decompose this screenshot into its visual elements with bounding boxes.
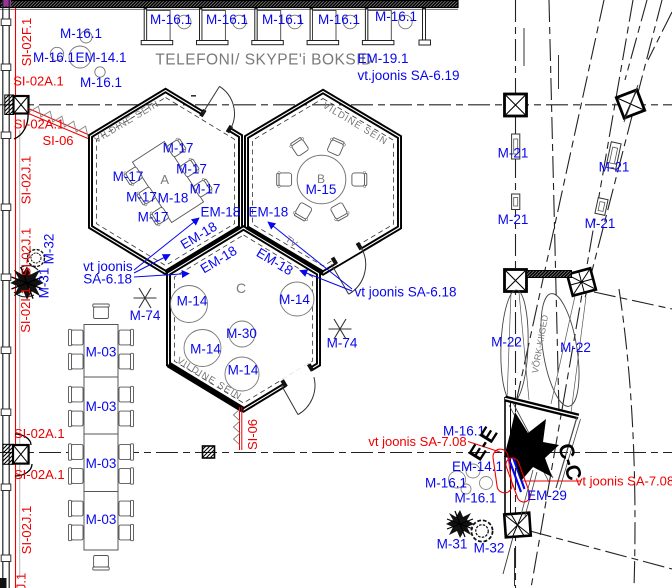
svg-text:M-22: M-22 bbox=[560, 340, 591, 355]
svg-text:M-17: M-17 bbox=[113, 169, 144, 184]
svg-text:M-14: M-14 bbox=[177, 294, 208, 309]
svg-text:M-21: M-21 bbox=[585, 216, 616, 231]
svg-text:M-16.1: M-16.1 bbox=[262, 12, 304, 27]
svg-text:M-17: M-17 bbox=[190, 182, 221, 197]
svg-text:SI-02F.1: SI-02F.1 bbox=[19, 18, 34, 66]
svg-text:M-16.1: M-16.1 bbox=[454, 491, 496, 506]
svg-text:EM-18: EM-18 bbox=[249, 204, 289, 219]
svg-text:C: C bbox=[236, 280, 246, 296]
svg-text:M-21: M-21 bbox=[498, 146, 529, 161]
svg-text:M-32: M-32 bbox=[474, 541, 505, 556]
svg-text:M-15: M-15 bbox=[306, 182, 337, 197]
svg-text:SA-6.18: SA-6.18 bbox=[83, 272, 132, 287]
svg-text:M-03: M-03 bbox=[86, 345, 117, 360]
svg-text:SI-02J.1: SI-02J.1 bbox=[19, 228, 34, 276]
svg-text:EM-29: EM-29 bbox=[527, 488, 567, 503]
svg-text:M-17: M-17 bbox=[138, 210, 169, 225]
svg-text:M-17: M-17 bbox=[163, 141, 194, 156]
svg-text:M-14: M-14 bbox=[190, 342, 221, 357]
svg-text:M-16.1: M-16.1 bbox=[33, 50, 75, 65]
svg-text:SI-02A.1: SI-02A.1 bbox=[14, 426, 65, 441]
svg-text:EM-19.1: EM-19.1 bbox=[357, 51, 408, 66]
svg-text:M-74: M-74 bbox=[130, 308, 161, 323]
svg-text:SI-06: SI-06 bbox=[42, 133, 73, 148]
svg-text:M-14: M-14 bbox=[228, 363, 259, 378]
svg-text:M-21: M-21 bbox=[498, 212, 529, 227]
svg-text:SI-02J.1: SI-02J.1 bbox=[19, 506, 34, 554]
svg-text:M-03: M-03 bbox=[86, 399, 117, 414]
svg-text:vt joonis SA-7.08: vt joonis SA-7.08 bbox=[576, 474, 672, 489]
svg-text:vt.joonis SA-6.19: vt.joonis SA-6.19 bbox=[357, 68, 459, 83]
svg-text:M-30: M-30 bbox=[226, 326, 257, 341]
svg-text:M-16.1: M-16.1 bbox=[80, 75, 122, 90]
svg-text:M-14: M-14 bbox=[279, 292, 310, 307]
svg-text:SI-02A.1: SI-02A.1 bbox=[14, 117, 65, 132]
svg-text:M-21: M-21 bbox=[599, 160, 630, 175]
svg-text:SI-02J.1: SI-02J.1 bbox=[14, 573, 29, 588]
svg-text:EM-14.1: EM-14.1 bbox=[75, 50, 126, 65]
svg-text:M-32: M-32 bbox=[42, 234, 57, 265]
svg-text:EM-18: EM-18 bbox=[201, 204, 241, 219]
svg-text:SI-02I.1: SI-02I.1 bbox=[18, 287, 33, 333]
svg-text:M-03: M-03 bbox=[86, 456, 117, 471]
svg-text:SI-02A.1: SI-02A.1 bbox=[13, 74, 64, 89]
svg-text:SI-02A.1: SI-02A.1 bbox=[14, 467, 65, 482]
svg-text:M-16.1: M-16.1 bbox=[150, 12, 192, 27]
svg-text:vt joonis SA-6.18: vt joonis SA-6.18 bbox=[354, 285, 456, 300]
svg-text:vt joonis SA-7.08: vt joonis SA-7.08 bbox=[368, 434, 466, 449]
svg-text:SI-06: SI-06 bbox=[245, 419, 260, 450]
svg-text:M-16.1: M-16.1 bbox=[375, 9, 417, 24]
svg-text:M-16.1: M-16.1 bbox=[425, 476, 467, 491]
svg-text:M-16.1: M-16.1 bbox=[60, 26, 102, 41]
svg-text:M-17: M-17 bbox=[176, 162, 207, 177]
svg-text:M-31: M-31 bbox=[437, 537, 468, 552]
svg-text:M-22: M-22 bbox=[491, 335, 522, 350]
svg-text:M-31: M-31 bbox=[37, 268, 52, 299]
svg-text:M-17: M-17 bbox=[126, 190, 157, 205]
svg-text:M-16.1: M-16.1 bbox=[206, 12, 248, 27]
svg-text:SI-02J.1: SI-02J.1 bbox=[19, 156, 34, 204]
svg-text:M-74: M-74 bbox=[327, 336, 358, 351]
svg-text:TELEFONI/ SKYPE'i BOKSID: TELEFONI/ SKYPE'i BOKSID bbox=[155, 52, 372, 69]
svg-text:M-03: M-03 bbox=[86, 512, 117, 527]
svg-text:M-18: M-18 bbox=[158, 191, 189, 206]
svg-text:M-16.1: M-16.1 bbox=[318, 12, 360, 27]
svg-text:A: A bbox=[160, 172, 169, 187]
